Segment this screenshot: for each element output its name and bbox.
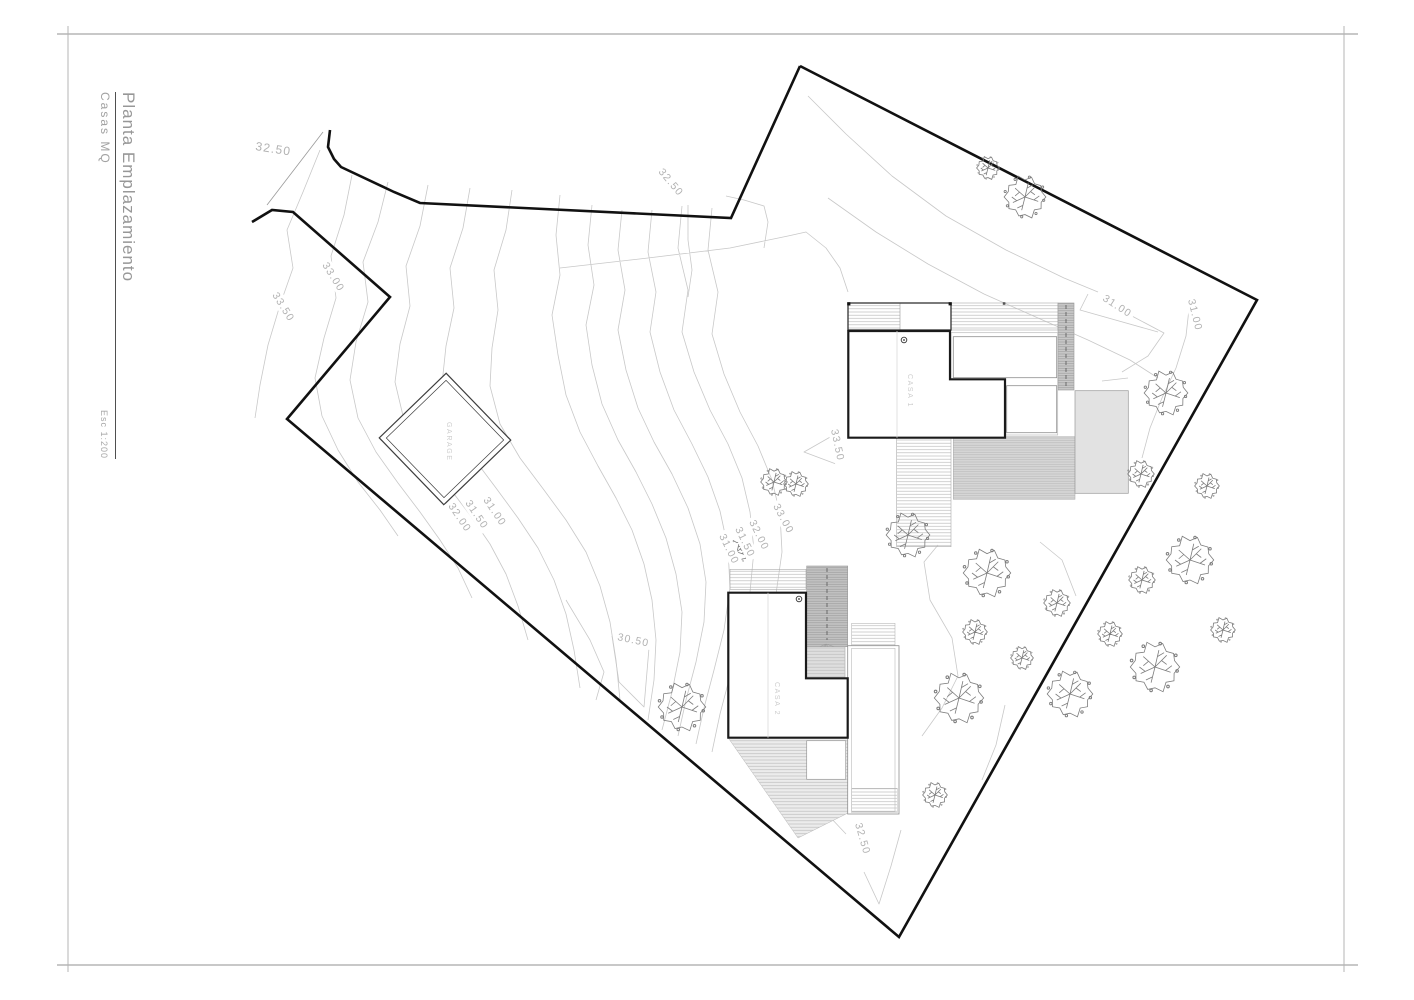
casa2-group: CASA 2 — [728, 566, 899, 838]
contour-label: 32.50 — [852, 822, 872, 856]
site-boundary — [252, 66, 1257, 937]
tree-icon — [784, 472, 809, 497]
drawing-sheet: GARAGE CASA 1 — [0, 0, 1414, 1000]
casa1-room-b — [1007, 386, 1057, 433]
contour-label: 32.50 — [255, 139, 293, 158]
casa2-pool-top-deck — [852, 623, 895, 645]
tree-icon — [963, 549, 1011, 597]
tree-icon — [1044, 590, 1071, 617]
tree-icon — [923, 783, 948, 808]
casa2-label: CASA 2 — [773, 682, 780, 716]
contour-label: 31.00 — [1100, 292, 1134, 320]
tree-icon — [658, 683, 706, 731]
contour-label: 33.00 — [319, 260, 346, 294]
tree-icon — [1011, 647, 1034, 670]
sheet-frame — [57, 26, 1358, 972]
garage-label: GARAGE — [445, 422, 452, 462]
tree-icon — [1098, 622, 1123, 647]
contour-label: 30.50 — [616, 631, 650, 649]
title-block: Planta Emplazamiento Casas MQ Esc 1:200 — [98, 92, 138, 459]
casa1-side-deck — [897, 438, 951, 547]
title-block-row: Casas MQ Esc 1:200 — [98, 92, 112, 459]
contour-label: 33.00 — [770, 502, 796, 536]
site-plan-drawing: GARAGE CASA 1 — [0, 0, 1414, 1000]
tree-icon — [1129, 567, 1156, 594]
tree-icon — [977, 157, 1000, 180]
tree-icon — [1211, 618, 1236, 643]
garage-building: GARAGE — [379, 373, 511, 505]
tree-icon — [1047, 671, 1093, 717]
tree-icon — [963, 620, 988, 645]
sheet-title: Planta Emplazamiento — [115, 92, 138, 459]
tree-icon — [761, 469, 788, 496]
casa1-room-a — [953, 337, 1056, 378]
casa2-deck-opening — [807, 741, 846, 780]
tree-icon — [1128, 461, 1155, 488]
tree-icon — [934, 673, 983, 722]
sheet-subtitle: Casas MQ — [98, 92, 112, 165]
casa2-top-deck — [730, 569, 806, 589]
casa1-patio — [900, 303, 951, 330]
tree-icon — [1195, 474, 1220, 499]
contour-label: 33.50 — [828, 428, 846, 462]
casa1-label: CASA 1 — [906, 374, 913, 408]
tree-icon — [1166, 536, 1214, 584]
tree-icon — [1130, 642, 1179, 691]
sheet-scale: Esc 1:200 — [99, 410, 109, 459]
casa1-annex — [1075, 391, 1128, 494]
casa1-top-deck — [848, 303, 1058, 330]
tree-icon — [1144, 371, 1188, 415]
casa2-pool-bottom-deck — [852, 788, 898, 812]
contour-label: 33.50 — [269, 290, 296, 324]
